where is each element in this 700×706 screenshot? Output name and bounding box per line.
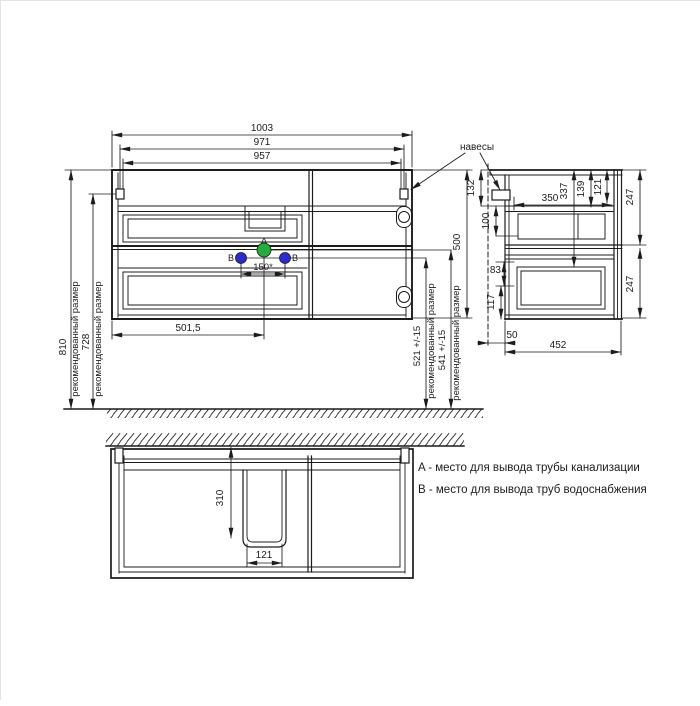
dim-452-label: 452 (550, 340, 567, 351)
dim-247-top-label: 247 (625, 188, 636, 205)
dim-139-label: 139 (576, 180, 587, 197)
front-extension-lines (65, 131, 472, 339)
front-door-divider (309, 170, 313, 319)
dim-810-label: 810 (58, 338, 69, 355)
hangers-callout-label: навесы (460, 142, 494, 153)
hangers-leader-right (480, 153, 500, 190)
labels: 1003 971 957 навесы 810 рекомендованный … (58, 123, 647, 561)
plan-sink-cutout-outer (243, 470, 286, 547)
point-a-label: A (261, 236, 267, 246)
hangers-leader-left (411, 153, 465, 190)
dim-121-side-label: 121 (593, 178, 604, 195)
dim-247-bottom-label: 247 (625, 275, 636, 292)
drawing-canvas: 1003 971 957 навесы 810 рекомендованный … (0, 0, 700, 700)
plan-hanger-right (401, 448, 409, 463)
dim-541-label: 541 +/-15 (437, 330, 448, 370)
technical-drawing: 1003 971 957 навесы 810 рекомендованный … (1, 1, 700, 701)
water-point-b-left-marker (236, 253, 247, 264)
recommended-size-label-3: рекомендованный размер (426, 283, 437, 398)
dim-1003-label: 1003 (251, 123, 274, 134)
front-sink-bowl (245, 206, 285, 231)
side-hanger (492, 190, 510, 200)
plan-view (106, 446, 464, 578)
door-hinge-top-cup-icon (399, 212, 410, 223)
floor-hatch (107, 410, 483, 419)
dim-121-plan-label: 121 (256, 550, 273, 561)
pipe-level-leader-lines (241, 250, 451, 258)
front-hanger-right (400, 189, 408, 199)
plan-wall-hatch (106, 433, 464, 446)
legend-line-a: A - место для вывода трубы канализации (418, 462, 640, 474)
plan-divider (308, 456, 312, 572)
dim-117-label: 117 (486, 294, 497, 310)
dim-83-label: 83 (490, 265, 502, 276)
front-drawer-panels (123, 215, 302, 309)
door-hinge-bottom-cup-icon (399, 292, 410, 303)
dim-50-label: 50 (506, 330, 518, 341)
dim-500-label: 500 (452, 233, 463, 250)
dim-350-label: 350 (542, 193, 559, 204)
water-point-b-right-marker (280, 253, 291, 264)
plan-hanger-left (115, 448, 123, 463)
recommended-size-label-1: рекомендованный размер (70, 281, 81, 396)
legend-line-b: B - место для вывода труб водоснабжения (418, 484, 647, 496)
dim-132-label: 132 (466, 179, 477, 196)
dim-957-label: 957 (254, 151, 271, 162)
dim-337-label: 337 (559, 182, 570, 199)
dim-100-label: 100 (481, 212, 492, 229)
dim-501-5-label: 501,5 (175, 323, 200, 334)
recommended-size-label-4: рекомендованный размер (451, 285, 462, 400)
side-drawer-boxes (517, 214, 605, 309)
point-b-left-label: B (228, 253, 234, 263)
dim-971-label: 971 (254, 137, 271, 148)
dim-728-label: 728 (81, 333, 92, 350)
front-hanger-left (116, 189, 124, 199)
point-b-right-label: B (292, 253, 298, 263)
dim-521-label: 521 +/-15 (412, 326, 423, 366)
plan-sink-cutout-inner (247, 470, 282, 542)
dim-150-label: 150* (253, 262, 273, 273)
recommended-size-label-2: рекомендованный размер (93, 281, 104, 396)
dim-310-label: 310 (215, 489, 226, 506)
